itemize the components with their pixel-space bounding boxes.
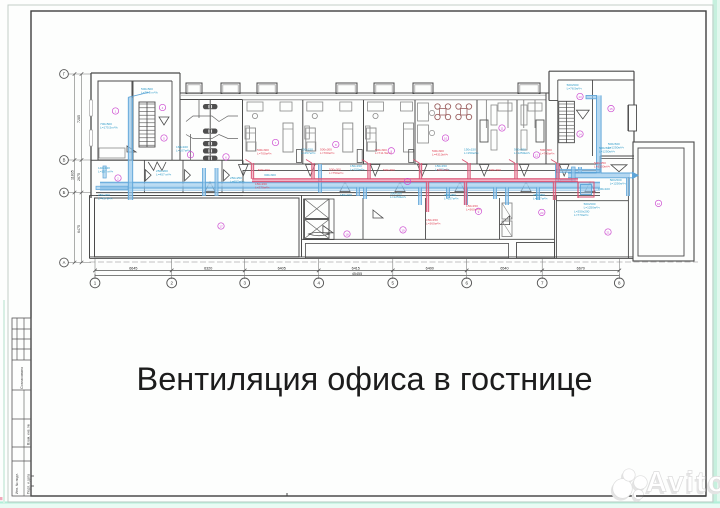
svg-text:L=457м³/ч: L=457м³/ч (301, 151, 316, 155)
svg-text:12: 12 (535, 154, 539, 158)
svg-text:L=750м³/ч: L=750м³/ч (329, 171, 344, 175)
svg-text:300x300: 300x300 (264, 173, 276, 177)
svg-text:13: 13 (578, 95, 582, 99)
svg-text:L=78.5м³/ч: L=78.5м³/ч (567, 86, 583, 90)
svg-text:L=1250м³/ч: L=1250м³/ч (514, 151, 530, 155)
svg-text:L=657м³/ч: L=657м³/ч (444, 196, 459, 200)
svg-text:100x100: 100x100 (598, 187, 610, 191)
svg-text:L=700м³/ч: L=700м³/ч (257, 151, 272, 155)
svg-text:6645: 6645 (129, 267, 137, 271)
svg-text:Инв. № подл.: Инв. № подл. (15, 473, 19, 494)
svg-text:L=770м³/ч: L=770м³/ч (574, 213, 589, 217)
svg-text:15: 15 (609, 107, 613, 111)
svg-text:7285: 7285 (77, 115, 81, 123)
svg-text:Взам. инв. №: Взам. инв. № (27, 424, 31, 445)
svg-text:Б: Б (63, 190, 66, 195)
svg-text:17: 17 (219, 225, 223, 229)
svg-text:В: В (63, 158, 66, 163)
svg-text:L=150м³/ч: L=150м³/ч (464, 151, 479, 155)
svg-text:Вентиляция офиса в гостнице: Вентиляция офиса в гостнице (137, 361, 593, 397)
svg-text:6670: 6670 (577, 267, 585, 271)
svg-text:18: 18 (345, 233, 349, 237)
svg-text:L=1250м³/ч: L=1250м³/ч (610, 181, 626, 185)
svg-text:500x300: 500x300 (383, 168, 395, 172)
svg-text:2675: 2675 (77, 173, 81, 181)
svg-text:L=657м³/ч: L=657м³/ч (533, 196, 548, 200)
svg-text:500x300: 500x300 (437, 168, 449, 172)
svg-text:6415: 6415 (352, 267, 360, 271)
svg-text:L=1250м³/ч: L=1250м³/ч (599, 149, 615, 153)
svg-text:L=270м³/ч: L=270м³/ч (255, 185, 270, 189)
svg-text:21: 21 (606, 231, 610, 235)
svg-text:L=3150м³/ч: L=3150м³/ч (594, 164, 610, 168)
svg-text:6540: 6540 (500, 267, 508, 271)
svg-text:6400: 6400 (426, 267, 434, 271)
svg-text:L=457 м³/ч: L=457 м³/ч (156, 172, 172, 176)
svg-text:L=1250м³/ч: L=1250м³/ч (608, 145, 624, 149)
svg-text:L=700м³/ч: L=700м³/ч (540, 151, 555, 155)
svg-text:L=360м³/ч: L=360м³/ч (426, 221, 441, 225)
svg-text:6475: 6475 (77, 225, 81, 233)
svg-text:Avito: Avito (646, 467, 720, 499)
svg-text:500x300: 500x300 (258, 168, 270, 172)
svg-text:6320: 6320 (204, 267, 212, 271)
svg-text:L=157 м³/ч: L=157 м³/ч (98, 169, 114, 173)
svg-text:L=78.5 m²/h: L=78.5 m²/h (141, 90, 158, 94)
svg-text:L=4313м³/ч: L=4313м³/ч (432, 152, 448, 156)
svg-text:L=175.5m²/h: L=175.5m²/h (100, 125, 118, 129)
svg-text:11: 11 (500, 127, 503, 131)
svg-text:10: 10 (444, 137, 448, 141)
svg-text:L=150м³/ч: L=150м³/ч (350, 167, 365, 171)
svg-text:11835: 11835 (71, 170, 75, 180)
svg-text:Подп. и дата: Подп. и дата (27, 474, 31, 494)
svg-text:А: А (63, 260, 66, 265)
svg-text:Согласовано: Согласовано (20, 367, 24, 389)
svg-text:150x150: 150x150 (340, 193, 352, 197)
svg-text:16: 16 (657, 202, 661, 206)
svg-text:19: 19 (401, 229, 405, 233)
svg-text:L=1250м³/ч: L=1250м³/ч (390, 195, 406, 199)
svg-text:6405: 6405 (278, 267, 286, 271)
svg-text:500x300: 500x300 (489, 168, 501, 172)
svg-text:14: 14 (578, 133, 582, 137)
svg-text:L=657м³/ч: L=657м³/ч (230, 179, 245, 183)
svg-text:L=700м³/ч: L=700м³/ч (320, 151, 335, 155)
svg-text:45455: 45455 (352, 272, 362, 276)
svg-text:20: 20 (540, 211, 544, 215)
svg-text:L=457м³/ч: L=457м³/ч (98, 196, 113, 200)
